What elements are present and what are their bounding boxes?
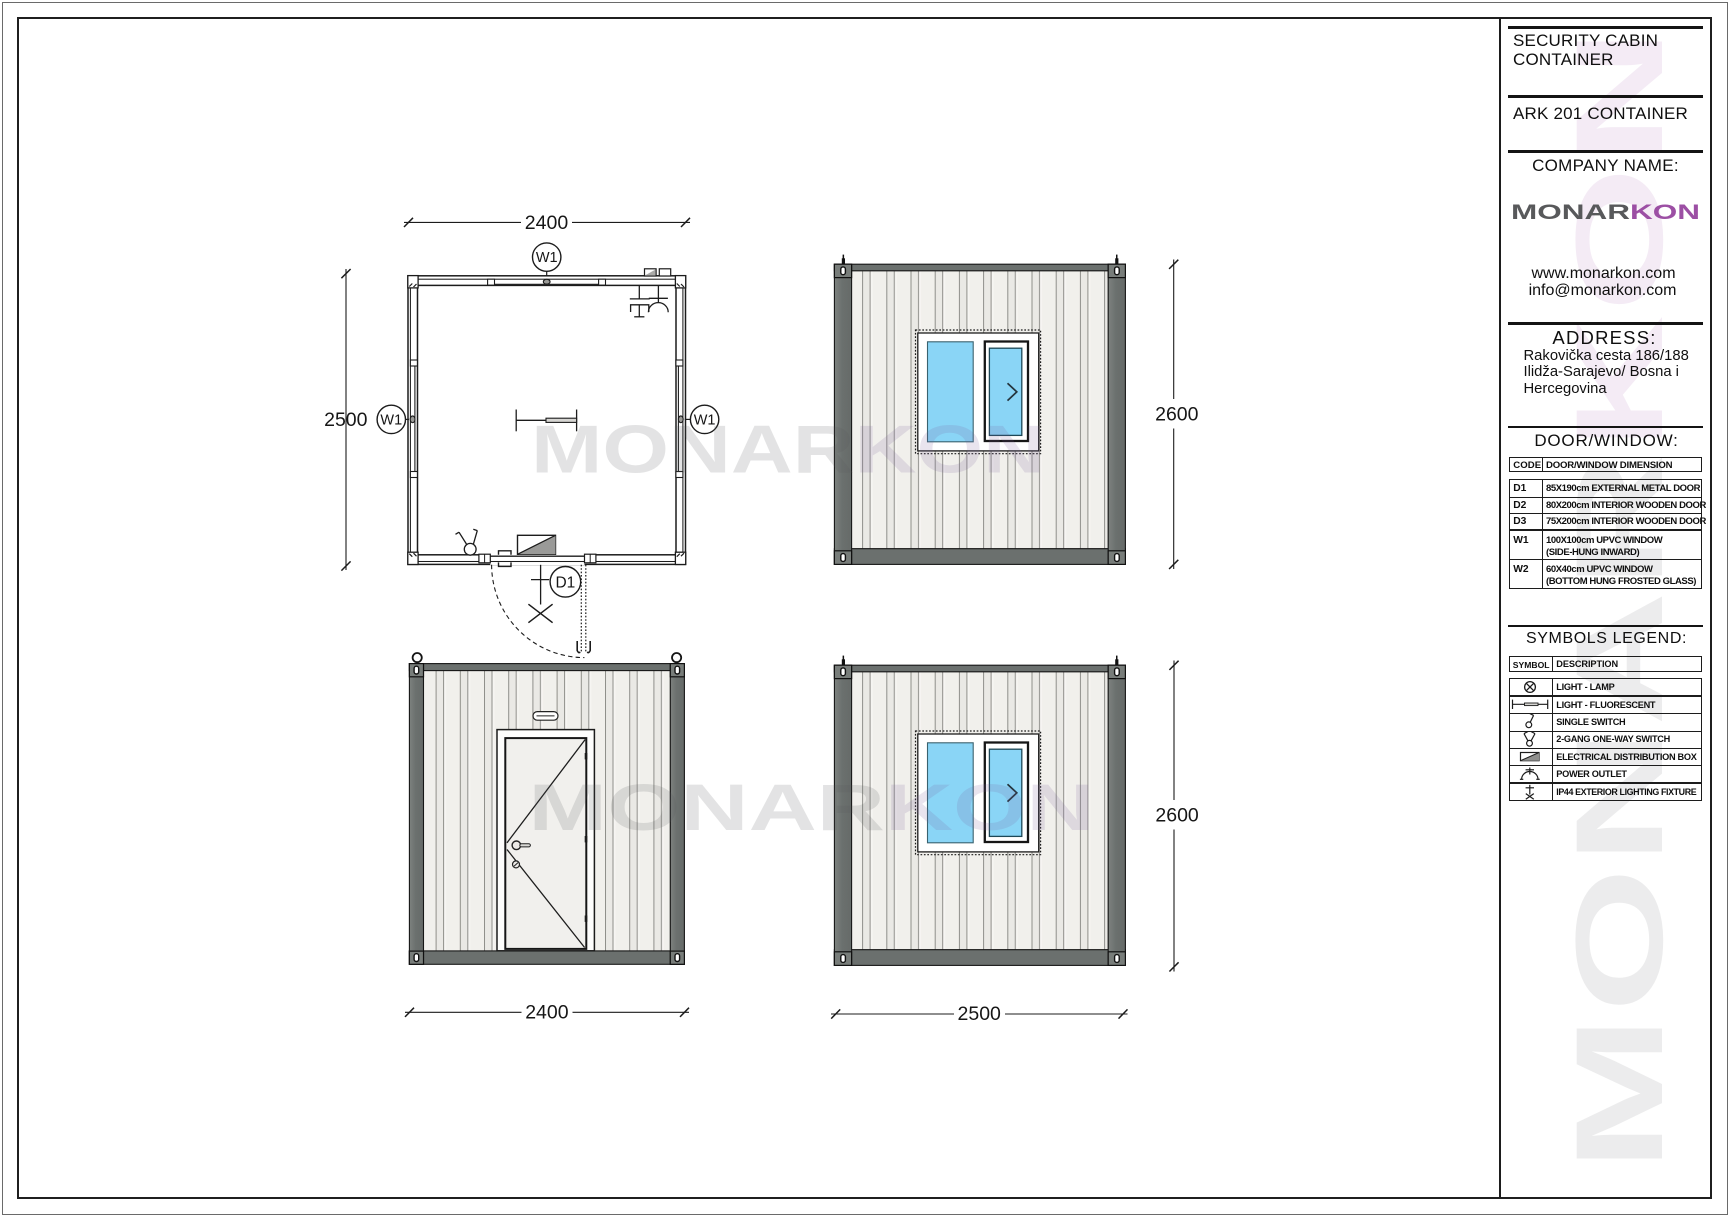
svg-text:W1: W1 — [536, 250, 558, 266]
svg-text:2600: 2600 — [1155, 804, 1199, 826]
svg-text:2500: 2500 — [958, 1003, 1002, 1025]
svg-text:MONARKON: MONARKON — [528, 771, 1094, 845]
svg-text:W1: W1 — [380, 413, 402, 429]
svg-text:MONARKON: MONARKON — [1551, 25, 1689, 1171]
svg-text:MONARKON: MONARKON — [531, 412, 1045, 488]
svg-text:2400: 2400 — [525, 212, 569, 234]
svg-text:D1: D1 — [555, 574, 575, 591]
svg-text:2400: 2400 — [525, 1002, 569, 1024]
svg-text:2500: 2500 — [324, 409, 368, 431]
svg-text:2600: 2600 — [1155, 403, 1199, 425]
